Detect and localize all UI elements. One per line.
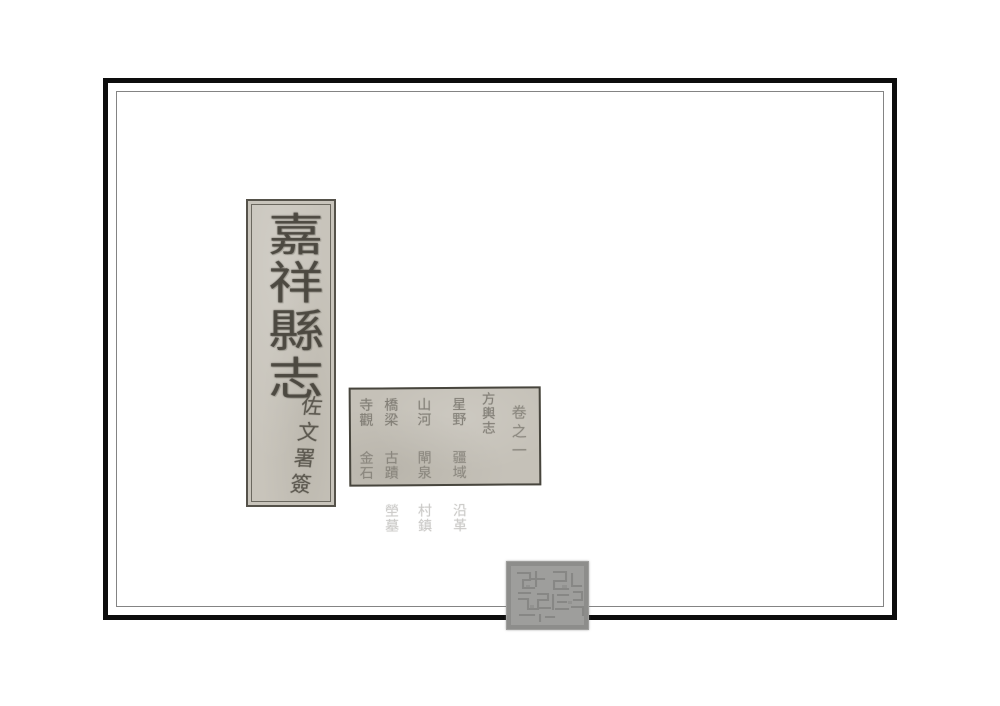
toc-column-3: 橋梁 古蹟 塋墓: [381, 397, 399, 533]
toc-column-1: 星野 疆域 沿革: [449, 397, 467, 533]
toc-item: 星野: [449, 397, 467, 427]
toc-item: 金石: [356, 450, 374, 480]
contents-slip: 卷之一 方輿志 星野 疆域 沿革 山河 閘泉 村鎮 橋梁 古蹟 塋墓 寺觀 金石: [349, 386, 542, 486]
toc-item: 山河: [414, 397, 432, 427]
toc-item: 古蹟: [381, 450, 399, 480]
toc-item: 疆域: [449, 450, 467, 480]
toc-item: 沿革: [449, 503, 467, 533]
toc-item: 村鎮: [414, 503, 432, 533]
title-signature: 佐文署簽: [287, 395, 322, 500]
page-frame: 嘉祥縣志 佐文署簽 卷之一 方輿志 星野 疆域 沿革 山河 閘泉 村鎮 橋梁 古…: [103, 78, 897, 620]
toc-item: 閘泉: [414, 450, 432, 480]
scanned-book-page: 嘉祥縣志 佐文署簽 卷之一 方輿志 星野 疆域 沿革 山河 閘泉 村鎮 橋梁 古…: [0, 0, 1000, 706]
toc-column-4: 寺觀 金石: [356, 398, 374, 481]
page-frame-inner-rule: [116, 91, 884, 607]
seal-stamp-icon: [506, 561, 589, 630]
toc-item: 橋梁: [381, 397, 399, 427]
section-label: 方輿志: [478, 392, 495, 436]
toc-item: 塋墓: [381, 503, 399, 533]
book-title: 嘉祥縣志: [263, 211, 319, 403]
title-slip: 嘉祥縣志 佐文署簽: [246, 199, 336, 507]
toc-column-2: 山河 閘泉 村鎮: [414, 397, 432, 533]
toc-item: 寺觀: [356, 398, 374, 428]
volume-label: 卷之一: [509, 404, 528, 461]
